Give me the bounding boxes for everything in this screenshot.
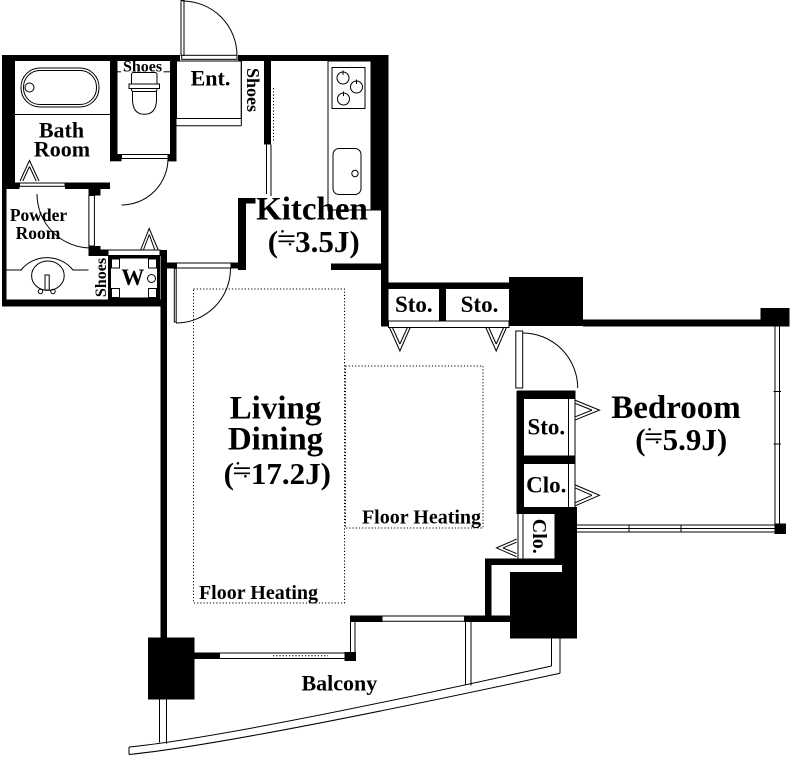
svg-text:Clo.: Clo.: [528, 519, 550, 554]
svg-text:Room: Room: [34, 137, 90, 162]
svg-text:Bedroom: Bedroom: [611, 390, 741, 426]
svg-text:Sto.: Sto.: [395, 292, 433, 317]
svg-text:Room: Room: [16, 223, 61, 243]
svg-text:Floor Heating: Floor Heating: [362, 507, 481, 529]
svg-text:Dining: Dining: [228, 422, 324, 458]
svg-text:Ent.: Ent.: [191, 66, 231, 91]
svg-text:Floor Heating: Floor Heating: [199, 582, 318, 604]
svg-text:(: (: [268, 224, 278, 259]
svg-text:W: W: [121, 265, 144, 290]
svg-text:Shoes: Shoes: [243, 68, 263, 112]
svg-text:Kitchen: Kitchen: [256, 192, 368, 228]
svg-text:Shoes: Shoes: [93, 258, 110, 297]
svg-text:Clo.: Clo.: [526, 472, 566, 497]
svg-text:Balcony: Balcony: [302, 671, 378, 696]
svg-text:Shoes: Shoes: [123, 59, 162, 76]
svg-text:Sto.: Sto.: [527, 414, 565, 439]
svg-text:3.5J): 3.5J): [295, 224, 360, 259]
svg-text:Sto.: Sto.: [461, 292, 499, 317]
svg-text:(: (: [224, 456, 234, 491]
svg-text:Powder: Powder: [10, 205, 68, 225]
svg-text:17.2J): 17.2J): [251, 456, 331, 491]
svg-text:5.9J): 5.9J): [663, 422, 728, 457]
svg-text:(: (: [635, 422, 645, 457]
